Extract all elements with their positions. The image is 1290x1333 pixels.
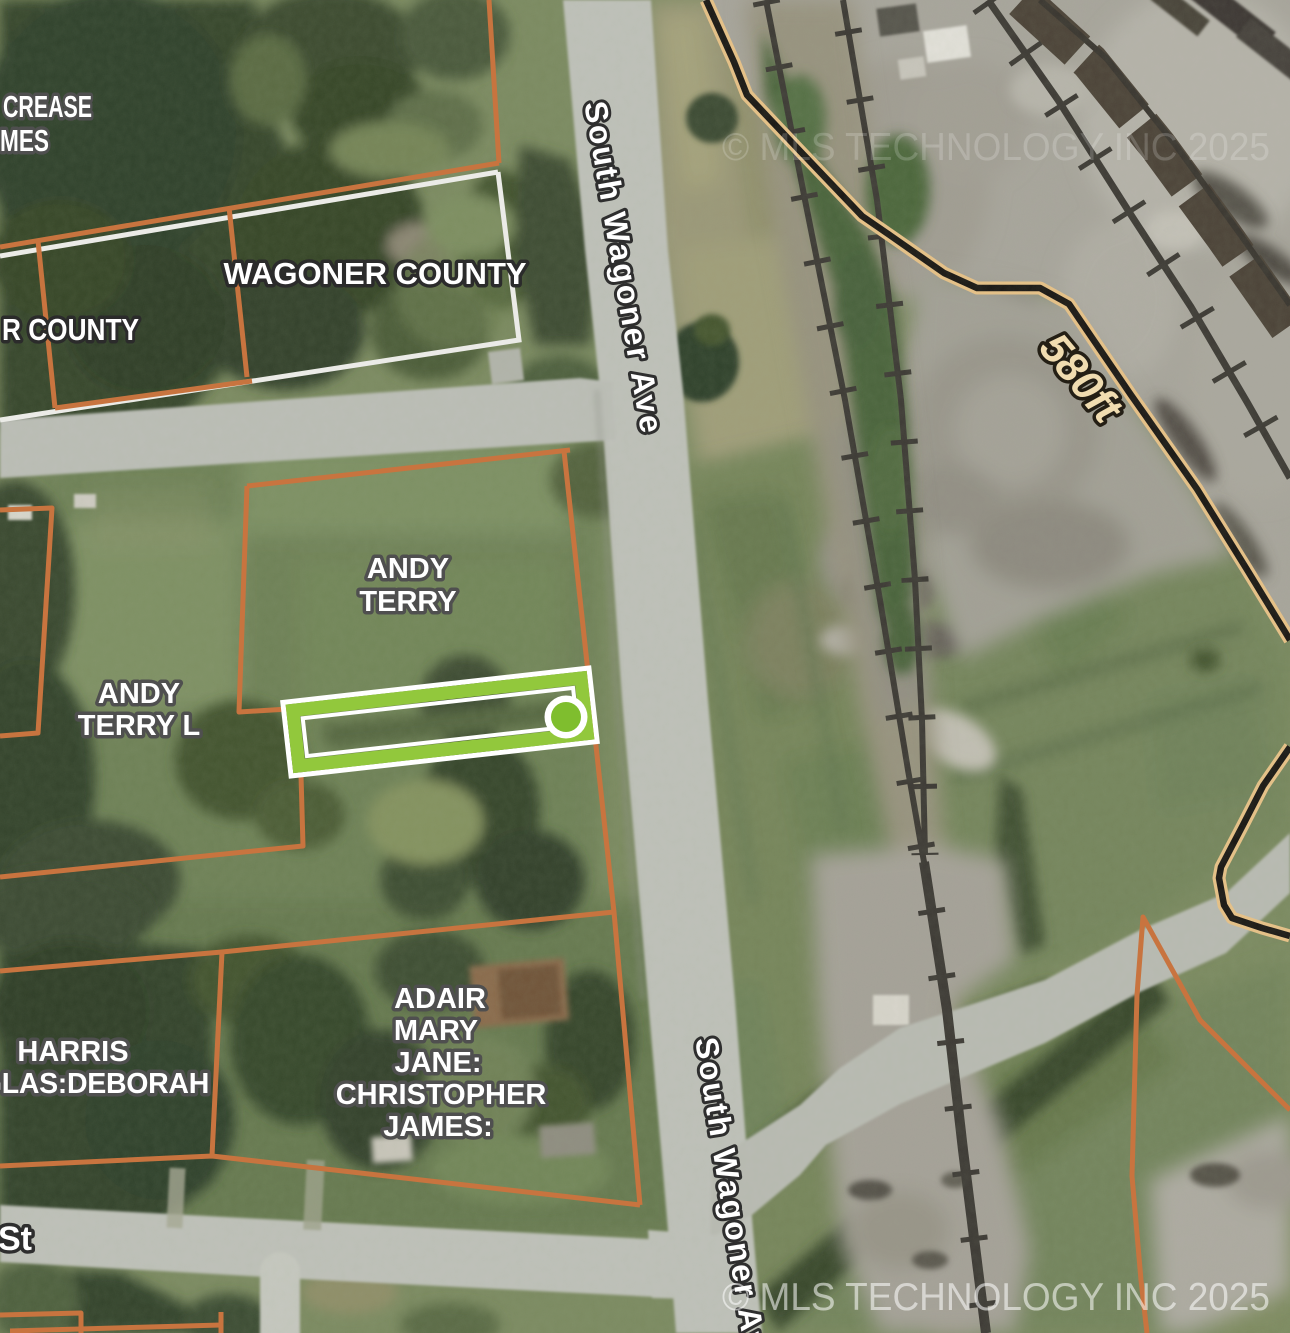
svg-text:ANDY: ANDY (367, 553, 449, 585)
svg-text:St: St (0, 1220, 32, 1258)
svg-text:TERRY L: TERRY L (78, 710, 200, 742)
svg-text:ANDY: ANDY (98, 678, 180, 710)
svg-text:ADAIR: ADAIR (394, 983, 486, 1015)
svg-text:MARY: MARY (394, 1015, 478, 1047)
svg-text:HARRIS: HARRIS (17, 1036, 128, 1068)
svg-text:GLAS:DEBORAH: GLAS:DEBORAH (0, 1068, 209, 1100)
svg-text:JANE:: JANE: (394, 1047, 481, 1079)
svg-text:MES: MES (0, 123, 49, 158)
svg-text:TERRY: TERRY (359, 586, 456, 618)
svg-text:CREASE: CREASE (3, 89, 92, 124)
svg-text:© MLS TECHNOLOGY INC 2025: © MLS TECHNOLOGY INC 2025 (722, 126, 1270, 169)
svg-text:R COUNTY: R COUNTY (2, 312, 139, 347)
svg-text:CHRISTOPHER: CHRISTOPHER (336, 1079, 547, 1111)
svg-text:© MLS TECHNOLOGY INC 2025: © MLS TECHNOLOGY INC 2025 (722, 1276, 1270, 1319)
svg-text:JAMES:: JAMES: (383, 1111, 493, 1143)
svg-text:WAGONER COUNTY: WAGONER COUNTY (223, 256, 526, 291)
